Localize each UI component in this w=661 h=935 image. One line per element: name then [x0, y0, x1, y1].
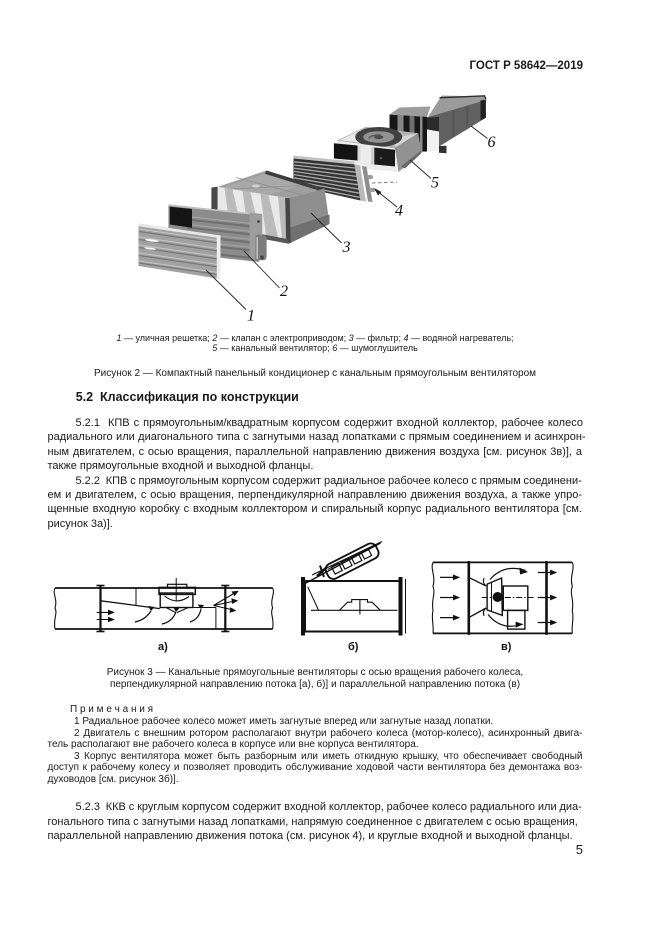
- svg-text:2: 2: [280, 283, 288, 300]
- svg-text:1: 1: [247, 308, 255, 325]
- svg-text:5: 5: [431, 175, 439, 192]
- svg-text:4: 4: [395, 203, 403, 220]
- svg-text:б): б): [348, 641, 359, 653]
- svg-text:3: 3: [342, 239, 351, 256]
- svg-text:6: 6: [488, 134, 496, 151]
- svg-text:в): в): [501, 641, 512, 653]
- svg-text:а): а): [158, 641, 168, 653]
